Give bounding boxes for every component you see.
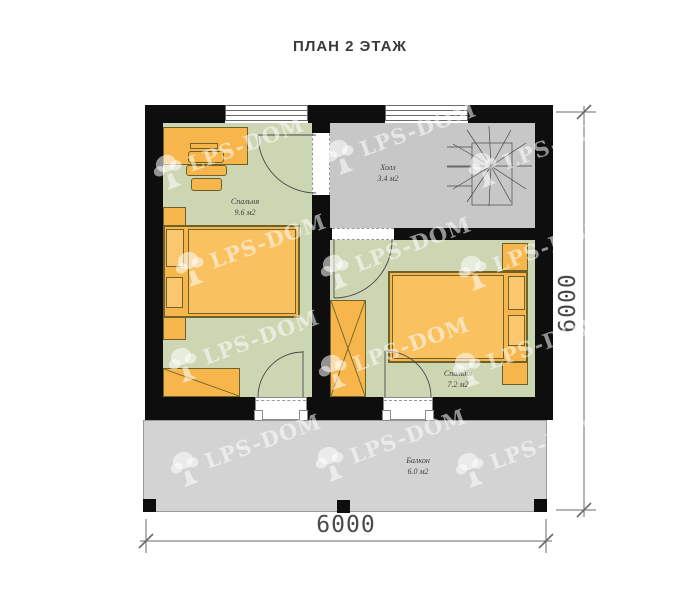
bed1-pillow [166, 229, 184, 267]
room-label-hall: Холл 3.4 м2 [343, 162, 433, 184]
wall-top [308, 105, 385, 123]
bed2-pillow [508, 315, 525, 346]
bed2-pillow [508, 276, 525, 310]
keyboard [188, 151, 224, 163]
dimension-height: 6000 [555, 263, 581, 343]
wall-left [145, 105, 163, 420]
balcony-door-bedroom1 [255, 397, 307, 420]
door-opening-bedroom2 [332, 228, 394, 240]
room-name: Спальня [413, 368, 503, 379]
monitor [190, 143, 218, 149]
room-label-bedroom2: Спальня 7.2 м2 [413, 368, 503, 390]
balcony-post [143, 499, 156, 512]
room-area: 7.2 м2 [413, 379, 503, 390]
wall-bottom [145, 397, 255, 420]
room-area: 3.4 м2 [343, 173, 433, 184]
wall-bottom [307, 397, 383, 420]
chair-back [186, 165, 227, 176]
balcony-door-bedroom2 [383, 397, 433, 420]
window [225, 105, 308, 121]
bed1-mattress [188, 229, 296, 314]
room-area: 9.6 м2 [200, 207, 290, 218]
wall-right [535, 105, 553, 420]
nightstand [502, 243, 528, 271]
dresser [163, 368, 240, 397]
room-name: Балкон [373, 455, 463, 466]
room-name: Холл [343, 162, 433, 173]
chair-seat [191, 178, 222, 191]
wardrobe [330, 300, 366, 397]
dimension-width: 6000 [306, 512, 386, 538]
balcony-post [534, 499, 547, 512]
page-title: ПЛАН 2 ЭТАЖ [0, 38, 700, 55]
nightstand [502, 362, 528, 385]
door-opening-bedroom1 [312, 133, 330, 195]
bed2-mattress [392, 275, 504, 359]
room-label-bedroom1: Спальня 9.6 м2 [200, 196, 290, 218]
room-label-balcony: Балкон 6.0 м2 [373, 455, 463, 477]
bed1-pillow [166, 277, 183, 308]
wall-bottom [433, 397, 553, 420]
room-area: 6.0 м2 [373, 466, 463, 477]
room-name: Спальня [200, 196, 290, 207]
balcony-floor [143, 420, 547, 512]
floor-plan: ПЛАН 2 ЭТАЖ [0, 0, 700, 600]
window [385, 105, 468, 121]
